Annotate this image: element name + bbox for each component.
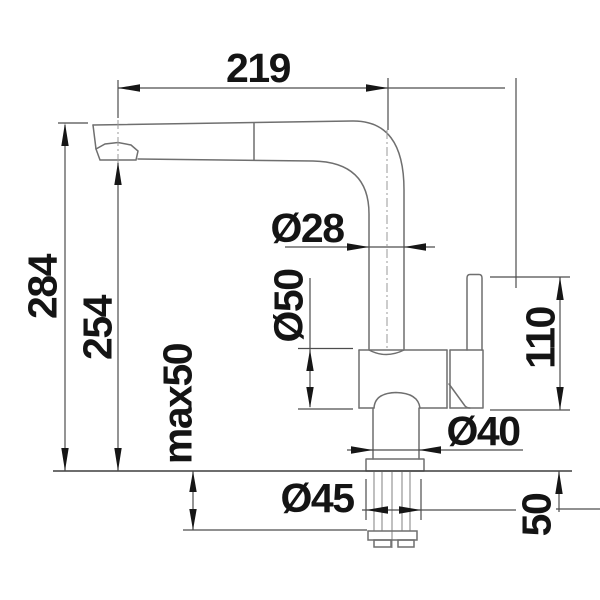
dimension-lines bbox=[58, 78, 600, 530]
handle-lever-rod bbox=[467, 275, 482, 351]
spout-outer-contour bbox=[93, 121, 404, 349]
label-neck-diameter: Ø40 bbox=[447, 408, 521, 454]
label-pipe-diameter: Ø28 bbox=[271, 205, 345, 251]
label-spout-height: 254 bbox=[74, 294, 120, 360]
spout-inner-contour bbox=[138, 159, 369, 349]
label-overall-height: 284 bbox=[19, 253, 65, 319]
locknut-tab-left bbox=[374, 540, 391, 547]
dim-handle-clearance-arrow-top bbox=[556, 277, 563, 300]
dim-body-dia-arrow-top bbox=[306, 350, 313, 372]
dim-overall-height-arrow-bottom bbox=[61, 448, 68, 471]
dim-shank-length-arrow-top bbox=[555, 471, 562, 494]
handle-base-diagonal bbox=[449, 384, 470, 408]
faucet-dimension-drawing: 219 284 254 max50 Ø28 Ø50 110 Ø40 Ø45 50 bbox=[0, 0, 600, 600]
label-max-thickness: max50 bbox=[154, 343, 200, 464]
dim-body-dia-arrow-bottom bbox=[306, 387, 313, 408]
spout-left-edge bbox=[93, 125, 96, 149]
dim-spout-height-arrow-top bbox=[114, 162, 121, 185]
handle-base bbox=[450, 350, 483, 408]
dim-spout-height-arrow-bottom bbox=[114, 448, 121, 471]
dim-max-thickness-arrow-bottom bbox=[189, 509, 196, 530]
label-reach: 219 bbox=[226, 45, 291, 91]
dim-base-dia-line bbox=[362, 509, 600, 510]
technical-drawing-canvas: 219 284 254 max50 Ø28 Ø50 110 Ø40 Ø45 50 bbox=[0, 0, 600, 600]
body-neck-dome bbox=[374, 393, 420, 409]
label-body-diameter: Ø50 bbox=[265, 269, 311, 343]
dim-max-thickness-arrow-top bbox=[189, 471, 196, 492]
dim-neck-dia-arrow-right bbox=[419, 446, 441, 454]
dim-reach-arrow-right bbox=[366, 84, 388, 92]
label-handle-clearance: 110 bbox=[517, 306, 563, 368]
dim-pipe-dia-arrow-right bbox=[404, 243, 426, 251]
locknut-tab-right bbox=[398, 540, 414, 547]
dim-pipe-dia-arrow-left bbox=[347, 243, 369, 251]
dim-handle-clearance-arrow-bottom bbox=[556, 387, 563, 410]
dim-reach-arrow-left bbox=[118, 84, 140, 92]
dim-overall-height-arrow-top bbox=[61, 123, 68, 146]
base-flange bbox=[366, 459, 424, 471]
label-shank-length: 50 bbox=[513, 493, 559, 536]
dim-base-dia-arrow-left bbox=[366, 506, 388, 514]
aerator-tip bbox=[96, 143, 138, 161]
label-base-diameter: Ø45 bbox=[281, 475, 355, 521]
dim-neck-dia-arrow-left bbox=[351, 446, 373, 454]
